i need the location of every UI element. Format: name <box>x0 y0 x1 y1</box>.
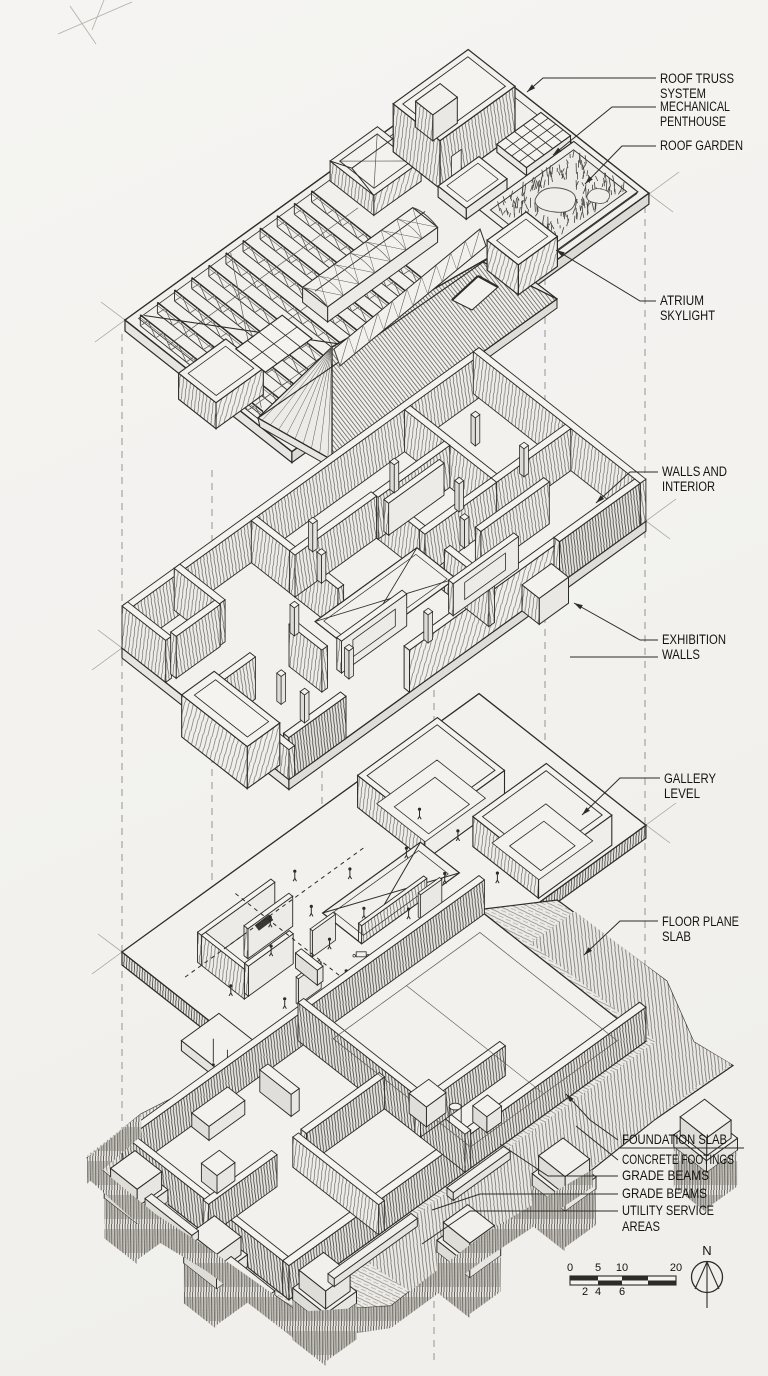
svg-text:10: 10 <box>616 1262 628 1274</box>
svg-text:CONCRETE FOOTINGS: CONCRETE FOOTINGS <box>622 1151 734 1167</box>
svg-text:ROOF GARDEN: ROOF GARDEN <box>660 138 743 153</box>
svg-text:4: 4 <box>595 1286 601 1298</box>
svg-text:INTERIOR: INTERIOR <box>662 479 715 494</box>
svg-text:UTILITY SERVICE: UTILITY SERVICE <box>622 1202 714 1218</box>
svg-text:SKYLIGHT: SKYLIGHT <box>660 308 715 323</box>
svg-text:N: N <box>702 1243 711 1258</box>
svg-text:5: 5 <box>595 1262 601 1274</box>
svg-text:0: 0 <box>567 1262 573 1274</box>
svg-text:WALLS AND: WALLS AND <box>662 464 727 479</box>
svg-text:GRADE BEAMS: GRADE BEAMS <box>622 1167 709 1183</box>
svg-text:EXHIBITION: EXHIBITION <box>662 632 726 647</box>
svg-text:FOUNDATION SLAB: FOUNDATION SLAB <box>622 1131 727 1147</box>
svg-text:6: 6 <box>619 1286 625 1298</box>
svg-text:2: 2 <box>582 1286 588 1298</box>
svg-text:WALLS: WALLS <box>662 647 700 662</box>
svg-text:20: 20 <box>670 1262 682 1274</box>
svg-text:GRADE BEAMS: GRADE BEAMS <box>622 1185 707 1201</box>
svg-text:AREAS: AREAS <box>622 1218 660 1234</box>
svg-text:ROOF TRUSS: ROOF TRUSS <box>660 71 734 86</box>
svg-text:ATRIUM: ATRIUM <box>660 293 704 308</box>
svg-text:MECHANICAL: MECHANICAL <box>660 99 730 114</box>
svg-text:GALLERY: GALLERY <box>664 771 716 786</box>
svg-text:PENTHOUSE: PENTHOUSE <box>660 114 726 129</box>
svg-text:LEVEL: LEVEL <box>664 786 700 801</box>
svg-text:SLAB: SLAB <box>662 929 691 944</box>
svg-text:FLOOR PLANE: FLOOR PLANE <box>662 914 739 929</box>
